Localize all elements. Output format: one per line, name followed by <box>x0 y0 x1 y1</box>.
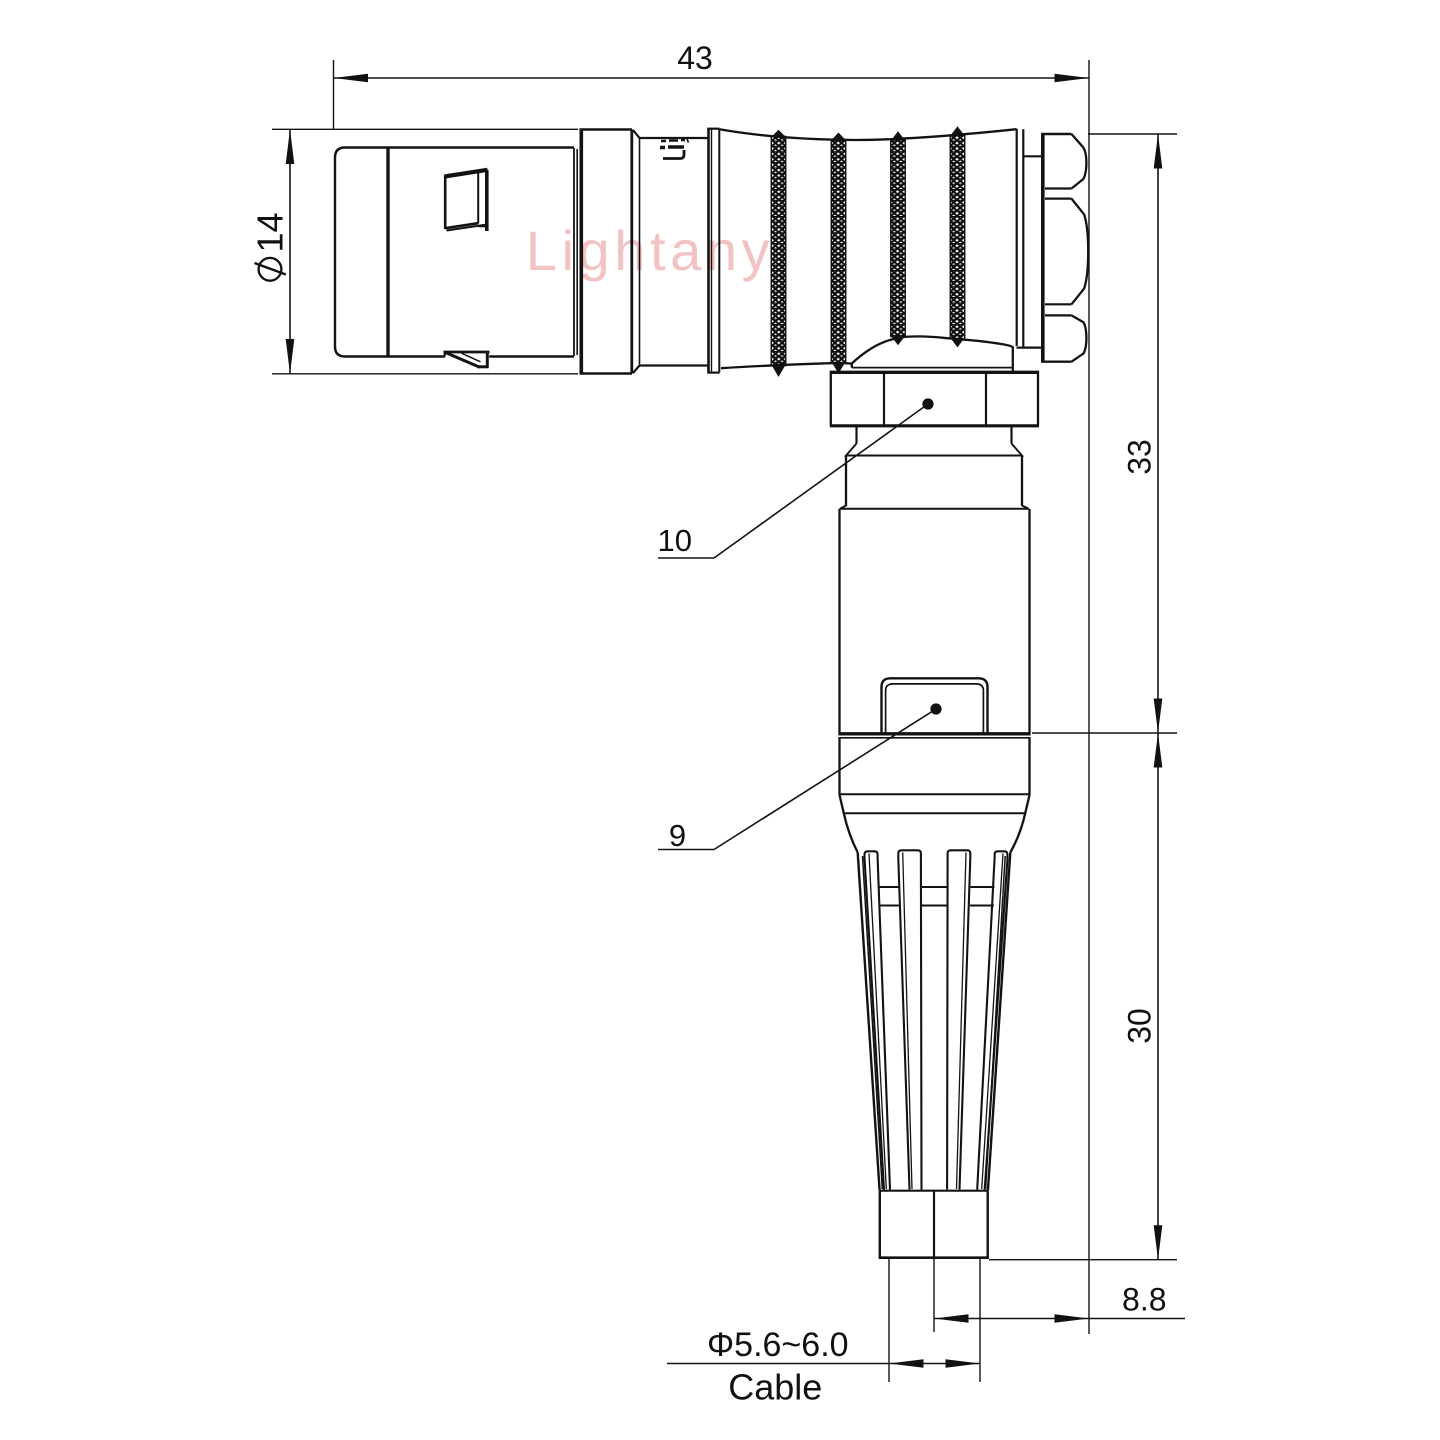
svg-text:Lightany: Lightany <box>526 219 775 282</box>
svg-text:14: 14 <box>250 212 291 252</box>
svg-text:8.8: 8.8 <box>1122 1282 1166 1318</box>
svg-text:9: 9 <box>669 818 686 853</box>
svg-text:43: 43 <box>677 40 713 76</box>
svg-text:Cable: Cable <box>728 1367 822 1408</box>
svg-text:33: 33 <box>1122 439 1158 475</box>
svg-text:10: 10 <box>657 523 691 558</box>
svg-text:Φ5.6~6.0: Φ5.6~6.0 <box>707 1326 849 1364</box>
svg-text:30: 30 <box>1122 1008 1158 1044</box>
